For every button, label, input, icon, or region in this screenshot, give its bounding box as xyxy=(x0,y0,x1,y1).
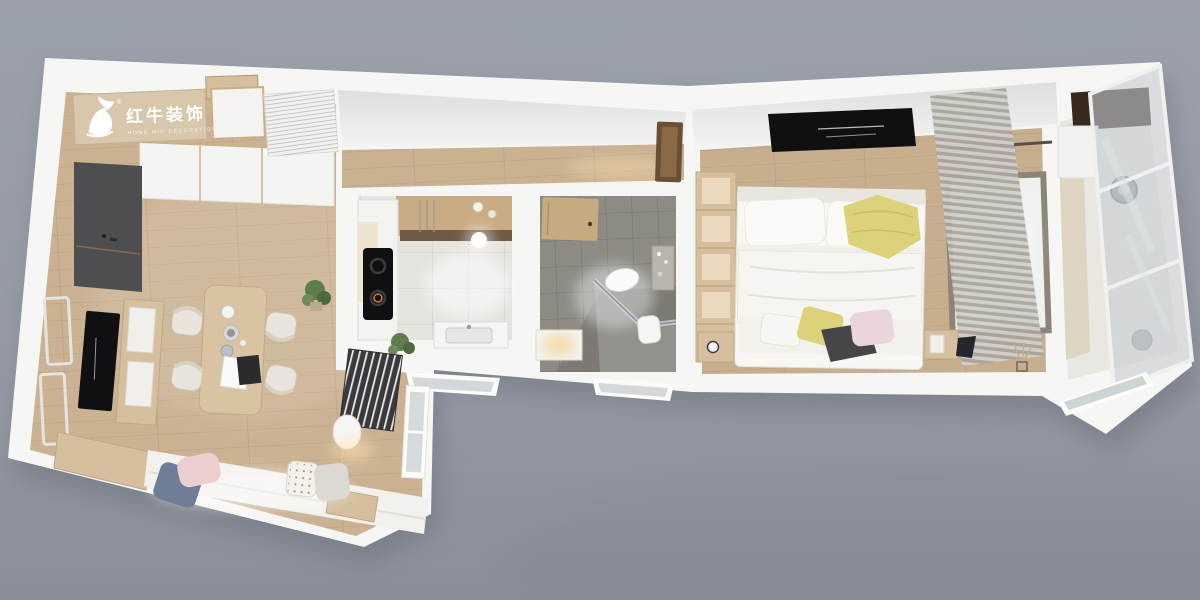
render-stage: ® 红牛装饰 HONG NIU DECORATION xyxy=(0,0,1200,600)
toiletry-bottle xyxy=(658,272,663,277)
wood-door xyxy=(541,197,598,241)
wardrobe-panel xyxy=(702,292,730,318)
wardrobe-panel xyxy=(702,216,730,242)
dark-accent-wall xyxy=(74,162,142,292)
sink-basin xyxy=(446,328,492,343)
kitchen-light-glow xyxy=(426,253,510,317)
pendant-light-halo xyxy=(465,226,493,254)
wood-framed-cabinet xyxy=(211,87,265,139)
console-door xyxy=(125,361,154,407)
bedroom-wall-tv xyxy=(768,108,916,152)
plant xyxy=(403,342,415,354)
plant-pot xyxy=(310,302,322,311)
alarm-clock xyxy=(708,342,719,353)
counter-dish xyxy=(473,202,483,212)
lamp-glow xyxy=(332,438,372,462)
pillow-checkered-pattern xyxy=(288,463,317,496)
glass-cup xyxy=(240,340,246,346)
wood-door-panel xyxy=(660,127,678,178)
entry-window-mullion xyxy=(407,432,424,433)
entry-window xyxy=(402,385,430,478)
bathroom xyxy=(536,196,676,372)
foot-pillow-white xyxy=(759,313,802,348)
door-handle xyxy=(588,222,592,226)
utensil-rail xyxy=(400,230,512,241)
dining-chair xyxy=(264,311,297,342)
kitchen xyxy=(358,196,512,355)
wall-hook xyxy=(102,234,106,238)
bowl xyxy=(227,329,235,337)
tray-warm-glow xyxy=(543,335,575,355)
bed-pillow xyxy=(744,197,826,247)
double-bed xyxy=(734,186,925,369)
counter-dish xyxy=(488,210,496,218)
foot-pillow-blush xyxy=(849,308,895,347)
brand-plaque: ® 红牛装饰 HONG NIU DECORATION xyxy=(73,89,218,145)
wardrobe-panel xyxy=(702,254,730,280)
dining-chair xyxy=(171,307,204,337)
apartment-render: ® 红牛装饰 HONG NIU DECORATION xyxy=(0,0,1200,600)
console-door xyxy=(127,307,156,353)
plate xyxy=(221,345,233,357)
toiletry-shelf xyxy=(652,246,674,290)
magazine xyxy=(237,355,262,385)
pillow-gray xyxy=(313,462,351,501)
ac-unit-ribs xyxy=(264,90,338,157)
toiletry-bottle xyxy=(664,260,668,264)
toilet xyxy=(637,315,662,344)
faucet xyxy=(467,325,471,329)
plate xyxy=(222,306,235,319)
wardrobe-panel xyxy=(702,178,730,204)
nightstand-books xyxy=(930,335,944,353)
brand-name: 红牛装饰 xyxy=(126,103,207,126)
toiletry-bottle xyxy=(657,252,661,256)
